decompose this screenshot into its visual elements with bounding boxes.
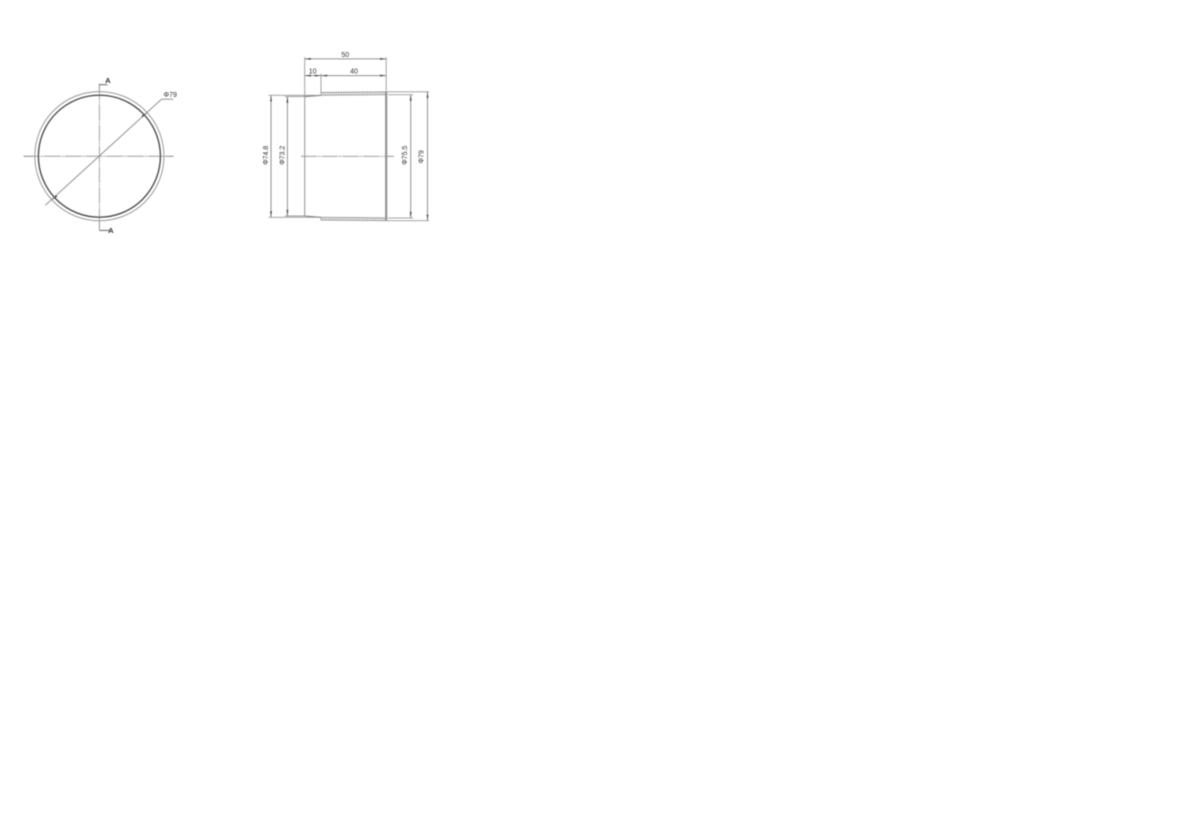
svg-text:A: A: [108, 226, 114, 235]
svg-text:50: 50: [341, 52, 349, 59]
svg-text:10: 10: [309, 69, 317, 76]
svg-text:A: A: [105, 76, 111, 85]
svg-text:40: 40: [350, 69, 358, 76]
svg-text:Φ73.2: Φ73.2: [280, 146, 287, 165]
svg-text:Φ75.5: Φ75.5: [402, 146, 409, 165]
svg-text:Φ79: Φ79: [164, 92, 177, 99]
svg-text:Φ79: Φ79: [419, 150, 426, 163]
svg-text:Φ74.8: Φ74.8: [263, 146, 270, 165]
